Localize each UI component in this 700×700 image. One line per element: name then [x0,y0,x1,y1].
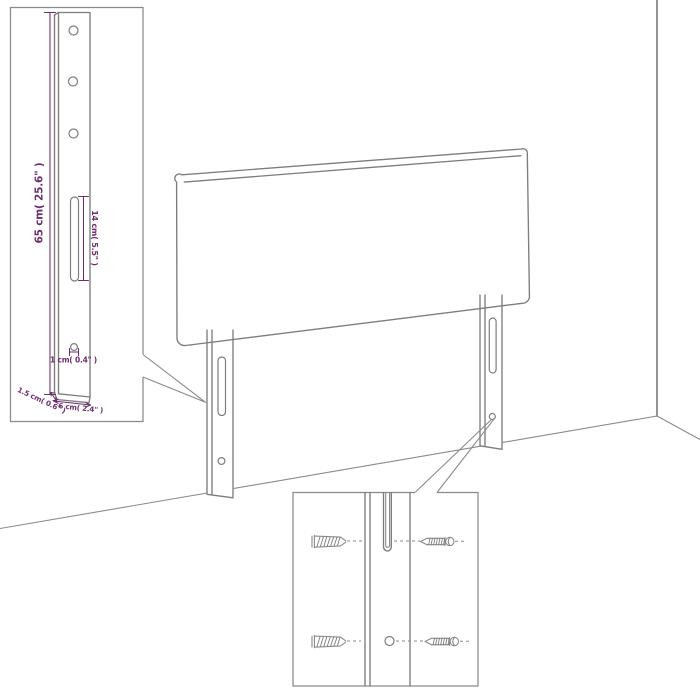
bracket-hole-1 [69,26,78,35]
left-leg [206,330,233,498]
bracket-slot [71,197,79,281]
assembly-diagram: 65 cm( 25.6" ) 14 cm( 5.5" ) 1 cm( 0.4" … [0,0,700,700]
inset-leg-detail: 65 cm( 25.6" ) 14 cm( 5.5" ) 1 cm( 0.4" … [11,8,144,422]
bracket-small-hole [71,344,78,351]
headboard-panel [175,149,530,346]
zoomed-hole [385,637,394,646]
left-inset-leader-lines [143,355,206,403]
bracket-hole-3 [69,129,78,138]
bracket-hole-2 [69,77,78,86]
right-leg-slot [489,318,496,373]
dimension-slot-label: 14 cm( 5.5" ) [90,210,99,266]
right-leg [479,295,502,450]
right-leg-hole [489,414,495,420]
inset-mounting-detail [293,493,478,687]
dimension-height-label: 65 cm( 25.6" ) [34,163,46,244]
floor-line-right [657,416,700,440]
left-leg-slot [218,357,226,416]
left-leg-hole [218,458,225,465]
product-diagram-page: 65 cm( 25.6" ) 14 cm( 5.5" ) 1 cm( 0.4" … [0,0,700,700]
panel-top-seam [184,156,521,182]
dimension-hole-label: 1 cm( 0.4" ) [50,356,97,365]
